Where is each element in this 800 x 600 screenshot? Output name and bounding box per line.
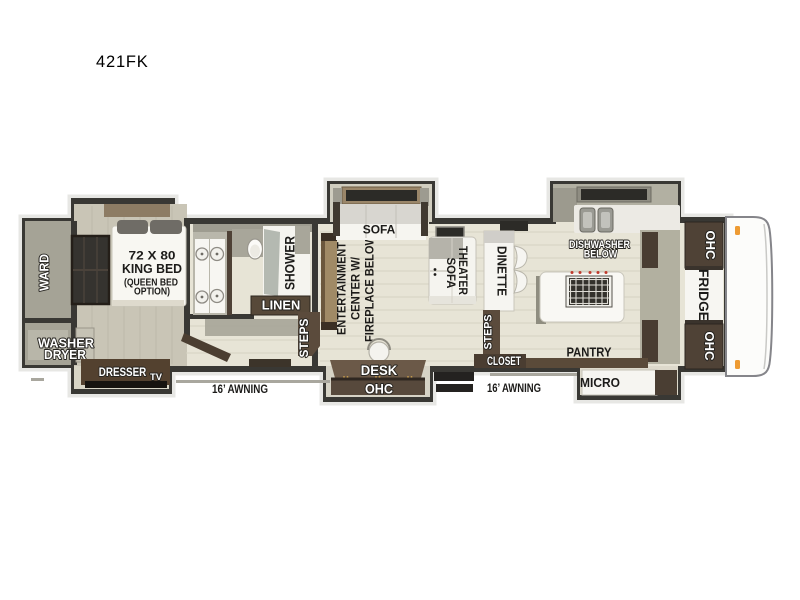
- svg-text:TV: TV: [150, 372, 163, 383]
- svg-text:BELOW: BELOW: [584, 249, 618, 261]
- svg-text:SOFA: SOFA: [363, 223, 396, 237]
- svg-text:OPTION): OPTION): [134, 286, 170, 298]
- svg-text:PANTRY: PANTRY: [567, 345, 612, 360]
- svg-text:DINETTE: DINETTE: [495, 246, 510, 296]
- svg-text:DESK: DESK: [361, 363, 398, 378]
- svg-text:SOFA: SOFA: [444, 258, 456, 289]
- svg-text:FRIDGE: FRIDGE: [696, 269, 711, 321]
- svg-text:ENTERTAINMENT: ENTERTAINMENT: [337, 242, 349, 335]
- svg-text:THEATER: THEATER: [456, 246, 468, 296]
- svg-text:FIREPLACE BELOW: FIREPLACE BELOW: [365, 235, 377, 342]
- svg-text:OHC: OHC: [365, 382, 393, 397]
- svg-text:MICRO: MICRO: [580, 375, 620, 390]
- svg-text:OHC: OHC: [702, 332, 716, 361]
- svg-text:16’ AWNING: 16’ AWNING: [212, 382, 268, 396]
- svg-text:72 X 80: 72 X 80: [129, 249, 176, 263]
- svg-text:STEPS: STEPS: [297, 319, 311, 358]
- svg-text:DRESSER: DRESSER: [99, 365, 147, 379]
- svg-text:16’ AWNING: 16’ AWNING: [487, 381, 541, 395]
- svg-text:KING BED: KING BED: [122, 262, 182, 276]
- svg-text:WARD: WARD: [37, 254, 52, 291]
- svg-text:OHC: OHC: [703, 231, 717, 260]
- svg-text:LINEN: LINEN: [262, 299, 301, 313]
- svg-text:CLOSET: CLOSET: [487, 356, 521, 368]
- svg-text:STEPS: STEPS: [483, 315, 495, 350]
- svg-text:SHOWER: SHOWER: [283, 236, 298, 290]
- svg-text:421FK: 421FK: [96, 53, 149, 71]
- svg-text:CENTER W/: CENTER W/: [351, 256, 363, 320]
- svg-text:DRYER: DRYER: [44, 348, 86, 362]
